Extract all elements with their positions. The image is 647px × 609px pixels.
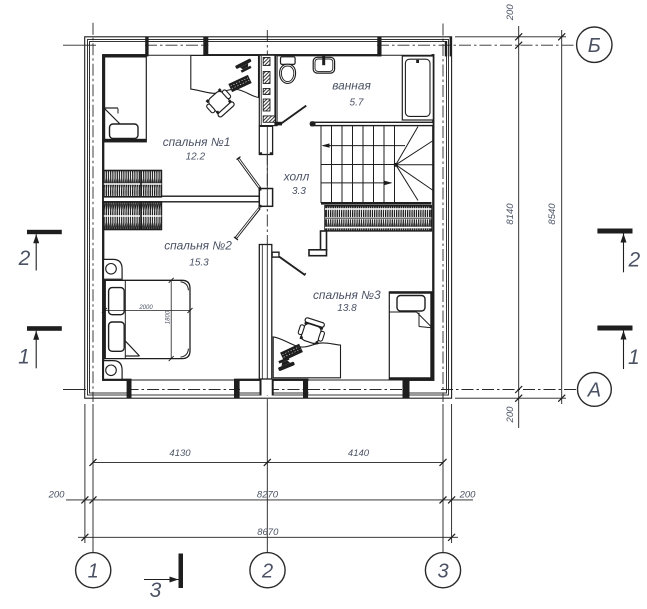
svg-text:А: А xyxy=(587,380,601,402)
svg-text:1: 1 xyxy=(88,561,99,583)
svg-text:1: 1 xyxy=(628,346,640,369)
svg-text:200: 200 xyxy=(48,490,66,501)
svg-text:3: 3 xyxy=(437,561,448,583)
svg-text:8270: 8270 xyxy=(257,490,279,501)
svg-text:200: 200 xyxy=(505,4,516,22)
svg-text:3.3: 3.3 xyxy=(292,186,306,197)
svg-text:2: 2 xyxy=(18,247,31,270)
svg-text:холл: холл xyxy=(283,170,310,184)
svg-text:8670: 8670 xyxy=(257,527,279,538)
svg-text:2: 2 xyxy=(261,561,273,583)
svg-text:8540: 8540 xyxy=(547,203,558,225)
svg-text:3: 3 xyxy=(150,579,162,602)
svg-text:2000: 2000 xyxy=(138,305,153,311)
svg-text:1800: 1800 xyxy=(166,310,172,324)
svg-text:8140: 8140 xyxy=(505,203,516,225)
svg-text:15.3: 15.3 xyxy=(189,258,209,269)
svg-text:200: 200 xyxy=(505,406,516,424)
svg-text:13.8: 13.8 xyxy=(337,303,357,314)
svg-text:5.7: 5.7 xyxy=(350,98,364,109)
svg-text:Б: Б xyxy=(588,35,601,57)
svg-text:4130: 4130 xyxy=(169,448,191,459)
svg-text:200: 200 xyxy=(459,490,477,501)
svg-text:спальня №2: спальня №2 xyxy=(164,239,232,253)
svg-text:1: 1 xyxy=(18,346,30,369)
svg-text:спальня №1: спальня №1 xyxy=(163,135,231,149)
svg-text:спальня №3: спальня №3 xyxy=(313,288,381,302)
svg-text:12.2: 12.2 xyxy=(186,152,206,163)
svg-text:2: 2 xyxy=(627,249,640,272)
svg-text:4140: 4140 xyxy=(348,448,370,459)
svg-text:ванная: ванная xyxy=(332,79,371,93)
